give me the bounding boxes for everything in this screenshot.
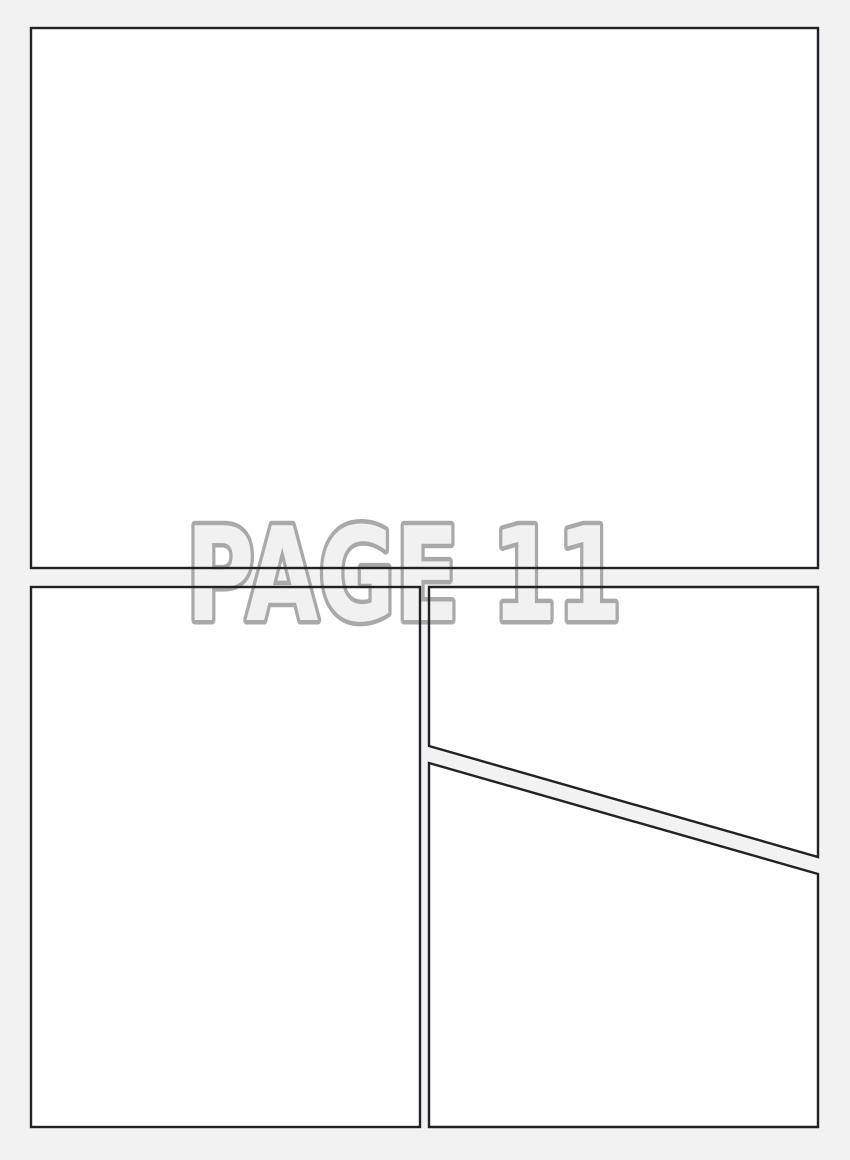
comic-page: PAGE 11 bbox=[0, 0, 850, 1160]
comic-page-canvas: PAGE 11 bbox=[0, 0, 850, 1160]
panel-1-top-area bbox=[31, 28, 818, 568]
page-number-watermark: PAGE 11 bbox=[186, 499, 622, 651]
panel-2-bottom-left-area bbox=[31, 587, 420, 1127]
